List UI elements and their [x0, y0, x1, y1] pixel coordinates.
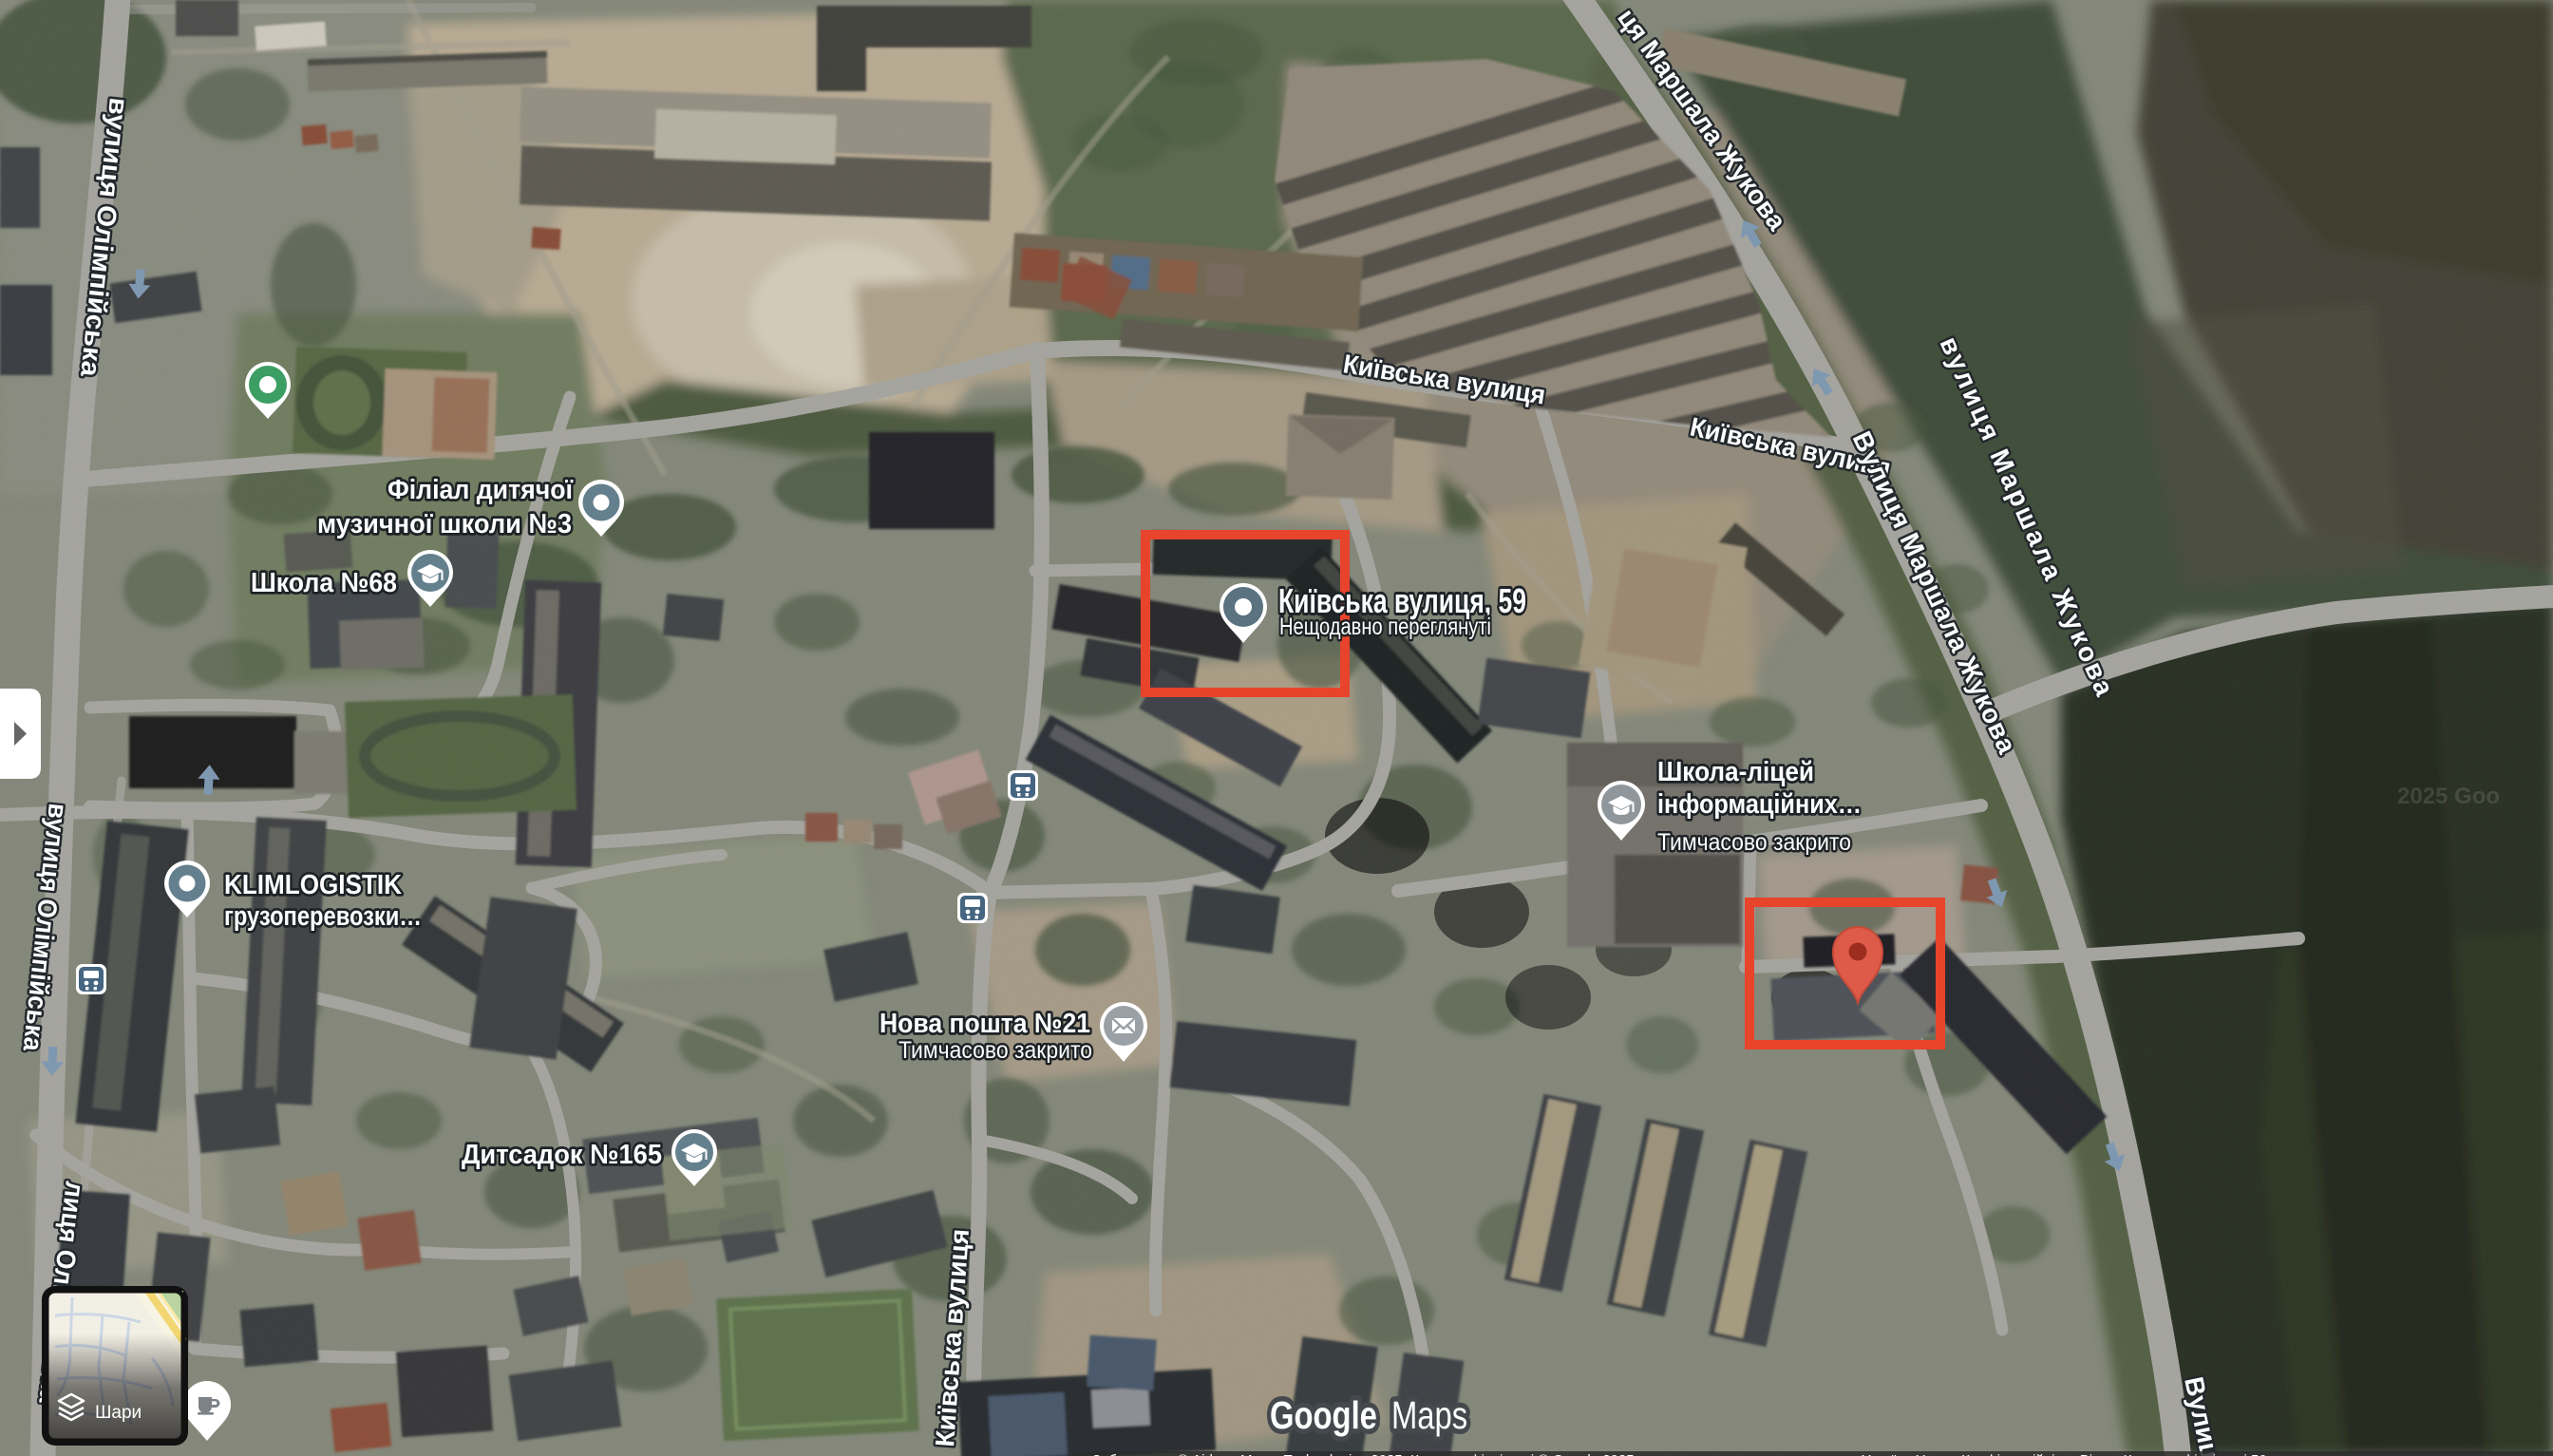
svg-text:Шари: Шари [95, 1403, 142, 1423]
svg-text:Філіал дитячої: Філіал дитячої [388, 475, 574, 505]
svg-text:Нещодавно переглянуті: Нещодавно переглянуті [1279, 614, 1491, 640]
svg-text:Нова пошта №21: Нова пошта №21 [879, 1009, 1090, 1039]
svg-text:Школа №68: Школа №68 [251, 568, 397, 598]
svg-text:Зображення © Airbus, Maxar Tec: Зображення © Airbus, Maxar Technologies … [1092, 1452, 1635, 1456]
svg-text:інформаційних…: інформаційних… [1657, 789, 1862, 820]
svg-text:KLIMLOGISTIK: KLIMLOGISTIK [224, 870, 402, 900]
svg-text:Школа-ліцей: Школа-ліцей [1657, 757, 1814, 787]
svg-text:Дитсадок №165: Дитсадок №165 [462, 1140, 662, 1170]
svg-text:Maps: Maps [1391, 1392, 1467, 1436]
svg-text:Google: Google [1270, 1392, 1377, 1436]
svg-text:Тимчасово закрито: Тимчасово закрито [898, 1037, 1092, 1064]
svg-text:грузоперевозки…: грузоперевозки… [224, 901, 422, 932]
svg-text:Тимчасово закрито: Тимчасово закрито [1657, 829, 1851, 856]
svg-text:музичної школи №3: музичної школи №3 [317, 509, 572, 539]
svg-text:Україна Умови Конфіденці: Україна Умови Конфіденційність Відгук Ка… [1862, 1452, 2280, 1456]
svg-text:2025 Goo: 2025 Goo [2397, 784, 2500, 809]
